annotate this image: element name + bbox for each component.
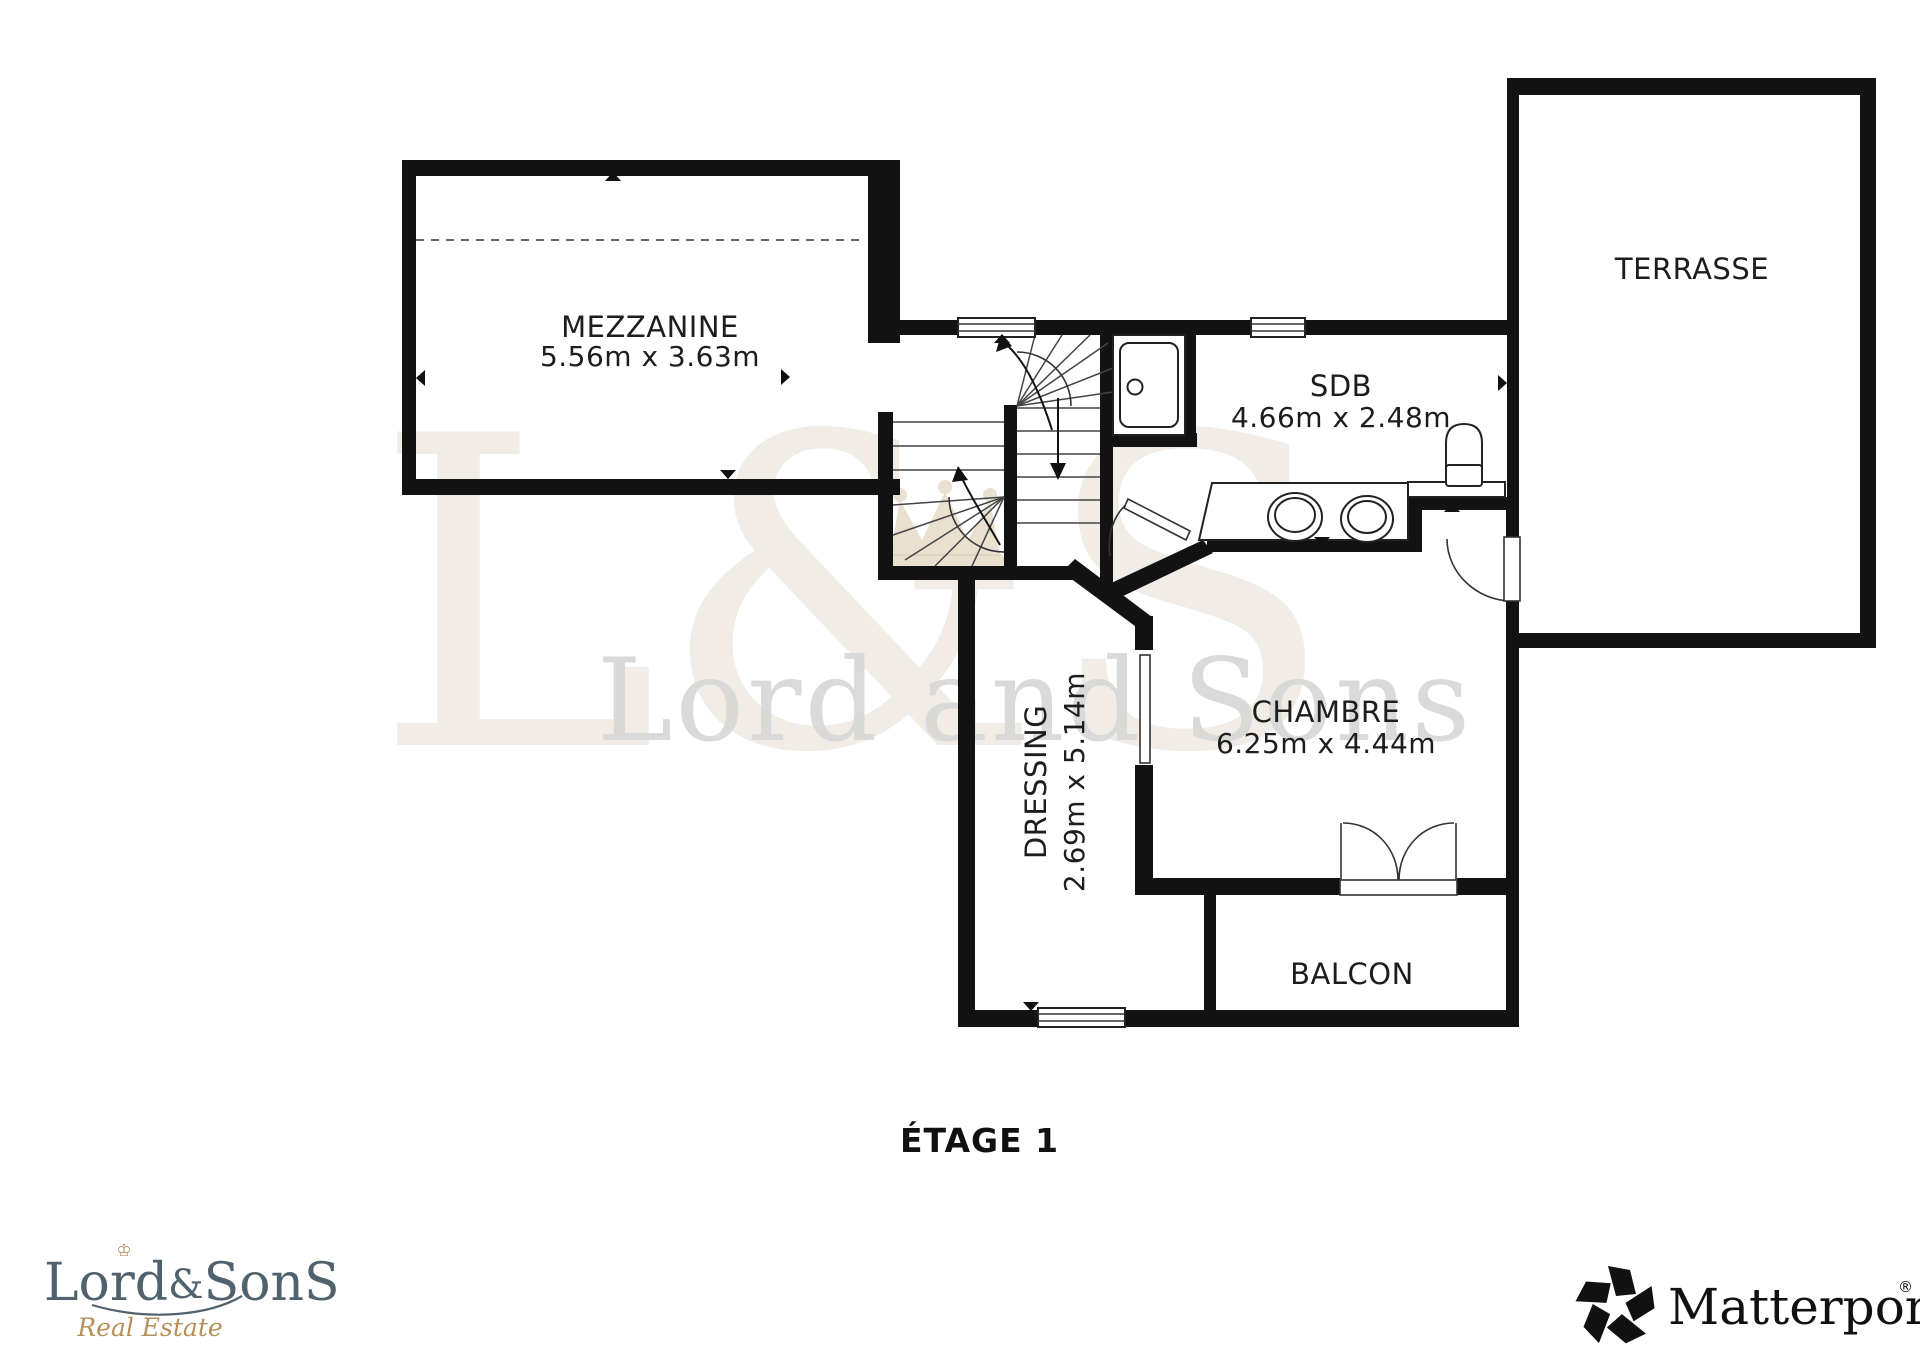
floor-plan-drawing: L&S Lord and Sons <box>0 0 1920 1358</box>
door-chambre-west <box>1140 655 1150 763</box>
shower <box>1113 335 1185 435</box>
agency-wordmark-lord: Lord <box>44 1253 168 1313</box>
wall-terrasse-top <box>1507 78 1876 95</box>
wall-sdb-north-right <box>1305 320 1507 335</box>
wall-chambre-south-left <box>1135 878 1340 895</box>
agency-tagline: Real Estate <box>76 1313 222 1342</box>
agency-wordmark-ampersand: & <box>168 1262 204 1308</box>
wall-chambre-ne <box>1420 497 1512 510</box>
wall-stair-top-left <box>898 320 958 335</box>
sink-left <box>1275 498 1315 532</box>
shower-drain <box>1128 380 1143 395</box>
wall-mezzanine-bottom <box>402 479 900 495</box>
wall-sdb-north-left <box>1113 320 1251 335</box>
wall-terrasse-right <box>1860 78 1876 648</box>
wall-mezzanine-top <box>402 160 900 176</box>
wall-terrasse-left <box>1507 78 1519 510</box>
room-dims-dressing: 2.69m x 5.14m <box>1058 672 1091 892</box>
room-label-chambre: CHAMBRE <box>1252 695 1401 729</box>
wall-chambre-east-upper <box>1506 510 1519 537</box>
door-chambre-terrasse <box>1447 537 1520 601</box>
wall-balcon-west <box>1204 895 1216 1012</box>
agency-logo: ♔ Lord&SonS Real Estate <box>44 1241 340 1342</box>
matterport-icon <box>1575 1266 1660 1350</box>
matterport-wordmark: Matterport <box>1668 1278 1920 1336</box>
room-label-sdb: SDB <box>1310 369 1372 403</box>
floor-label: ÉTAGE 1 <box>900 1120 1059 1160</box>
wall-mezzanine-right <box>868 160 900 343</box>
room-label-terrasse: TERRASSE <box>1614 252 1769 286</box>
window-sdb <box>1251 318 1305 337</box>
room-label-mezzanine: MEZZANINE <box>561 310 739 344</box>
wall-stair-bottom <box>878 566 1078 580</box>
room-dims-sdb: 4.66m x 2.48m <box>1231 401 1451 434</box>
wall-chambre-west-lower <box>1135 765 1153 878</box>
room-dims-chambre: 6.25m x 4.44m <box>1216 727 1436 760</box>
wall-mezzanine-left <box>402 160 416 495</box>
window-dressing <box>1038 1008 1125 1027</box>
matterport-registered-mark: ® <box>1898 1278 1913 1296</box>
wall-stair-newel <box>1004 405 1017 566</box>
room-label-balcon: BALCON <box>1290 957 1414 991</box>
door-balcon-french <box>1340 823 1457 895</box>
room-label-dressing: DRESSING <box>1019 705 1053 859</box>
agency-wordmark: Lord&SonS <box>44 1253 340 1313</box>
wall-stair-top-right <box>1035 320 1113 335</box>
wall-vanity <box>1207 540 1410 552</box>
floor-plan-page: L&S Lord and Sons <box>0 0 1920 1358</box>
room-dims-mezzanine: 5.56m x 3.63m <box>540 340 760 373</box>
door-opening-mezzanine <box>868 343 900 412</box>
vanity-double-sink <box>1199 483 1408 542</box>
wall-terrasse-bottom <box>1519 633 1860 648</box>
wall-stair-sdb-divider <box>1100 335 1113 592</box>
wall-stair-left <box>878 412 893 580</box>
wall-south-right <box>1123 1010 1519 1027</box>
sink-right <box>1348 501 1386 533</box>
wall-dressing-west <box>958 566 975 1027</box>
matterport-logo: Matterport ® <box>1575 1266 1920 1350</box>
wall-sdb-step <box>1408 497 1422 552</box>
window-stair <box>958 318 1035 337</box>
wall-chambre-east-lower <box>1506 601 1519 1027</box>
toilet <box>1408 424 1505 497</box>
